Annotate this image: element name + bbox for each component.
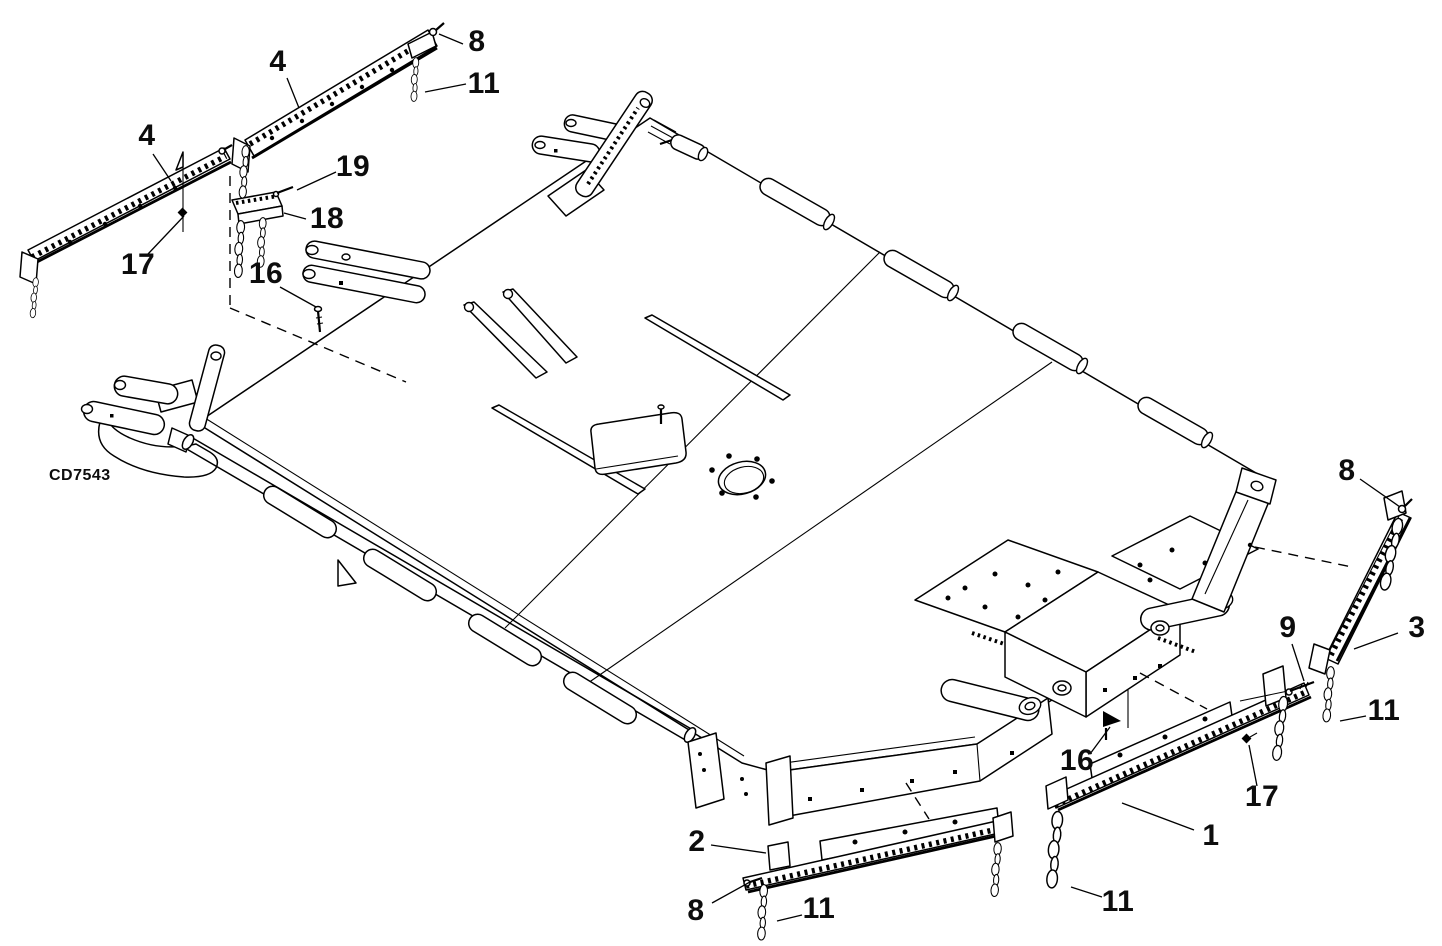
bolt-16-right [1103,711,1121,740]
left-corner-arm-assembly [82,343,227,477]
callout-part-9: 9 [1279,613,1296,643]
callout-part-1: 1 [1202,821,1219,851]
callout-part-17: 17 [121,250,155,280]
bolt-8-top [430,23,445,36]
callout-part-2: 2 [688,827,705,857]
chain-icon [233,220,245,277]
chain-icon [757,884,768,940]
bolt-19 [274,187,294,197]
bolt-16-left [315,307,324,333]
callout-part-16: 16 [1060,746,1094,776]
chain-icon [1045,811,1063,888]
callout-part-17: 17 [1245,782,1279,812]
callout-part-11: 11 [468,69,501,99]
edge-link-arms [302,240,432,305]
figure-code: CD7543 [49,468,111,484]
callout-part-3: 3 [1408,613,1425,643]
callout-part-11: 11 [803,894,836,924]
bracket-2 [768,842,790,870]
callout-part-8: 8 [1338,456,1355,486]
callout-part-19: 19 [336,152,370,182]
callout-part-18: 18 [310,204,344,234]
parts-diagram-page: 48114191817168391116171112811 CD7543 [0,0,1442,946]
chain-icon [990,842,1002,896]
callout-part-11: 11 [1102,887,1135,917]
callout-part-4: 4 [138,121,155,151]
bolt-17-right [1242,733,1257,743]
callout-part-4: 4 [269,47,286,77]
chain-icon [1322,666,1335,722]
callout-part-8: 8 [687,896,704,926]
callout-part-8: 8 [468,27,485,57]
callout-part-11: 11 [1368,696,1401,726]
callout-part-16: 16 [249,259,283,289]
tube-flag [338,560,356,586]
alignment-mark-17 [176,152,187,232]
parts-diagram [0,0,1442,946]
chain-icon [29,277,39,318]
rail-4-upper [232,30,437,172]
